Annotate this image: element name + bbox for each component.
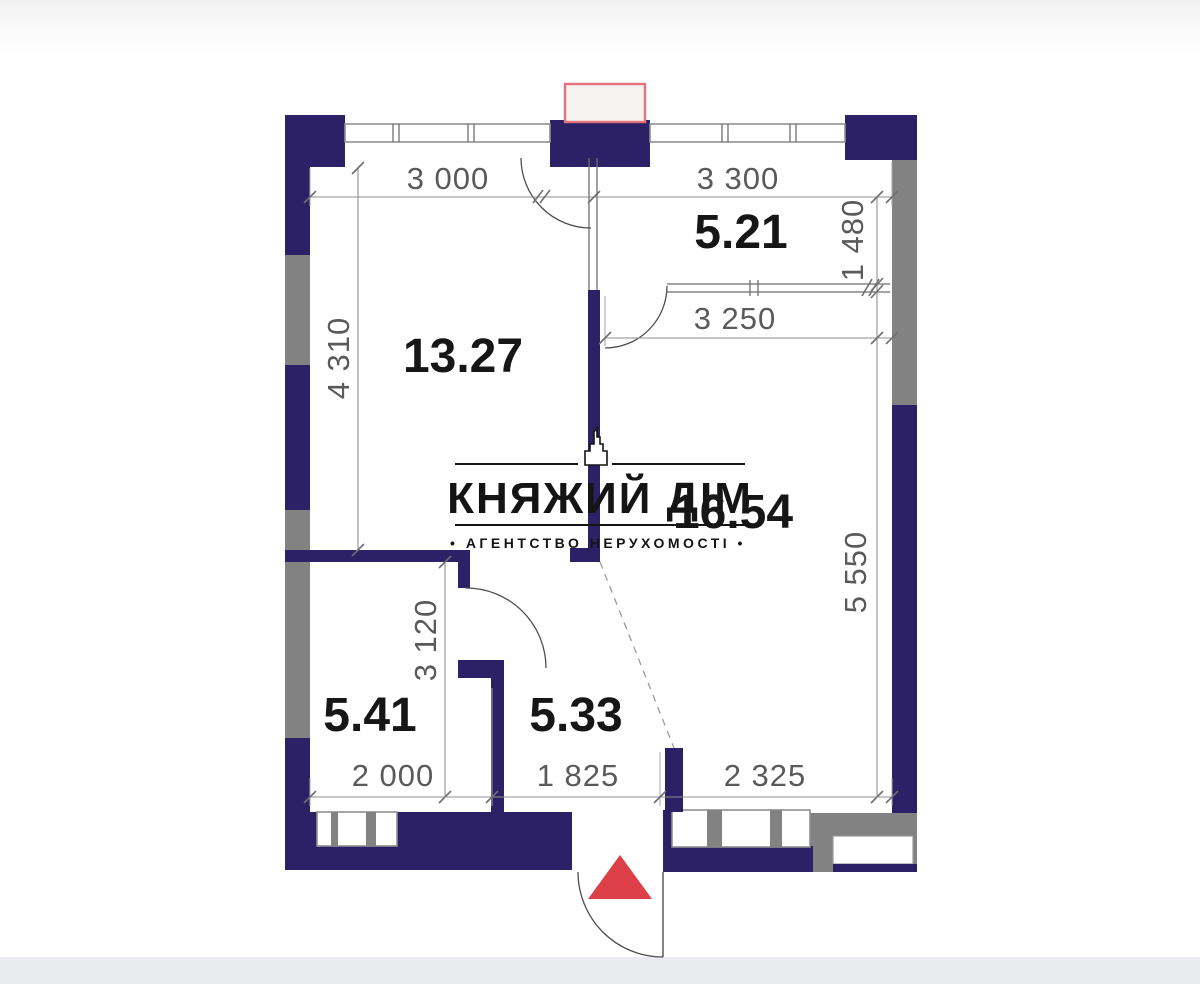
window-bottom-right-niche bbox=[833, 836, 913, 864]
window-bottom-center-mullion-1 bbox=[707, 810, 722, 847]
wall-right-navy bbox=[892, 405, 917, 813]
wall-entrance-jamb bbox=[665, 748, 683, 812]
dim-mid-left: 3 120 bbox=[408, 599, 443, 682]
window-bottom-center-mullion-2 bbox=[770, 810, 782, 847]
room-area-5-33: 5.33 bbox=[529, 689, 622, 742]
wall-left-navy-1 bbox=[285, 167, 310, 255]
room-area-5-41: 5.41 bbox=[323, 689, 416, 742]
window-top-right bbox=[650, 124, 845, 142]
wall-bottom-left-band bbox=[285, 846, 572, 870]
dim-top-right: 3 300 bbox=[697, 161, 780, 196]
room-area-13-27: 13.27 bbox=[403, 330, 523, 383]
floorplan-page: 3 000 3 300 4 310 1 480 3 250 5 550 3 12… bbox=[0, 0, 1200, 984]
window-bottom-center bbox=[672, 810, 810, 847]
wall-top-right-corner bbox=[845, 115, 917, 160]
wall-13-27-5-41 bbox=[285, 550, 470, 562]
balcony-marker bbox=[565, 84, 645, 122]
dim-bottom-left: 2 000 bbox=[352, 758, 435, 793]
wall-bottom-left-pier bbox=[397, 812, 572, 846]
dim-top-left: 3 000 bbox=[407, 161, 490, 196]
dim-right-upper: 1 480 bbox=[835, 199, 870, 282]
wall-left-gray-1 bbox=[285, 255, 310, 365]
room-area-5-21: 5.21 bbox=[694, 206, 787, 259]
room-area-16-54: 16.54 bbox=[673, 486, 793, 539]
wall-bottom-right-sill bbox=[833, 864, 917, 872]
dim-bottom-right: 2 325 bbox=[724, 758, 807, 793]
wall-right-gray bbox=[892, 160, 917, 405]
window-bottom-left-mullion-2 bbox=[366, 812, 376, 846]
dim-mid-right: 3 250 bbox=[694, 301, 777, 336]
wall-bottom-right-band bbox=[663, 846, 813, 872]
top-strip bbox=[0, 0, 1200, 58]
dim-bottom-center: 1 825 bbox=[537, 758, 620, 793]
wall-bottom-window-jamb-right bbox=[663, 810, 672, 847]
window-bottom-left-mullion-1 bbox=[331, 812, 338, 846]
window-bottom-left bbox=[317, 812, 397, 846]
wall-left-gray-2 bbox=[285, 510, 310, 738]
dim-right-lower: 5 550 bbox=[838, 531, 873, 614]
wall-top-left-corner bbox=[285, 115, 345, 167]
window-top-left bbox=[345, 124, 550, 142]
wall-stub-5-41-door bbox=[458, 562, 470, 588]
dim-left: 4 310 bbox=[321, 317, 356, 400]
bottom-strip bbox=[0, 957, 1200, 984]
wall-left-navy-2 bbox=[285, 365, 310, 510]
wall-top-center-pier bbox=[550, 120, 650, 167]
floorplan-drawing: 3 000 3 300 4 310 1 480 3 250 5 550 3 12… bbox=[0, 0, 1200, 984]
wall-bottom-window-jamb-left bbox=[310, 812, 317, 846]
